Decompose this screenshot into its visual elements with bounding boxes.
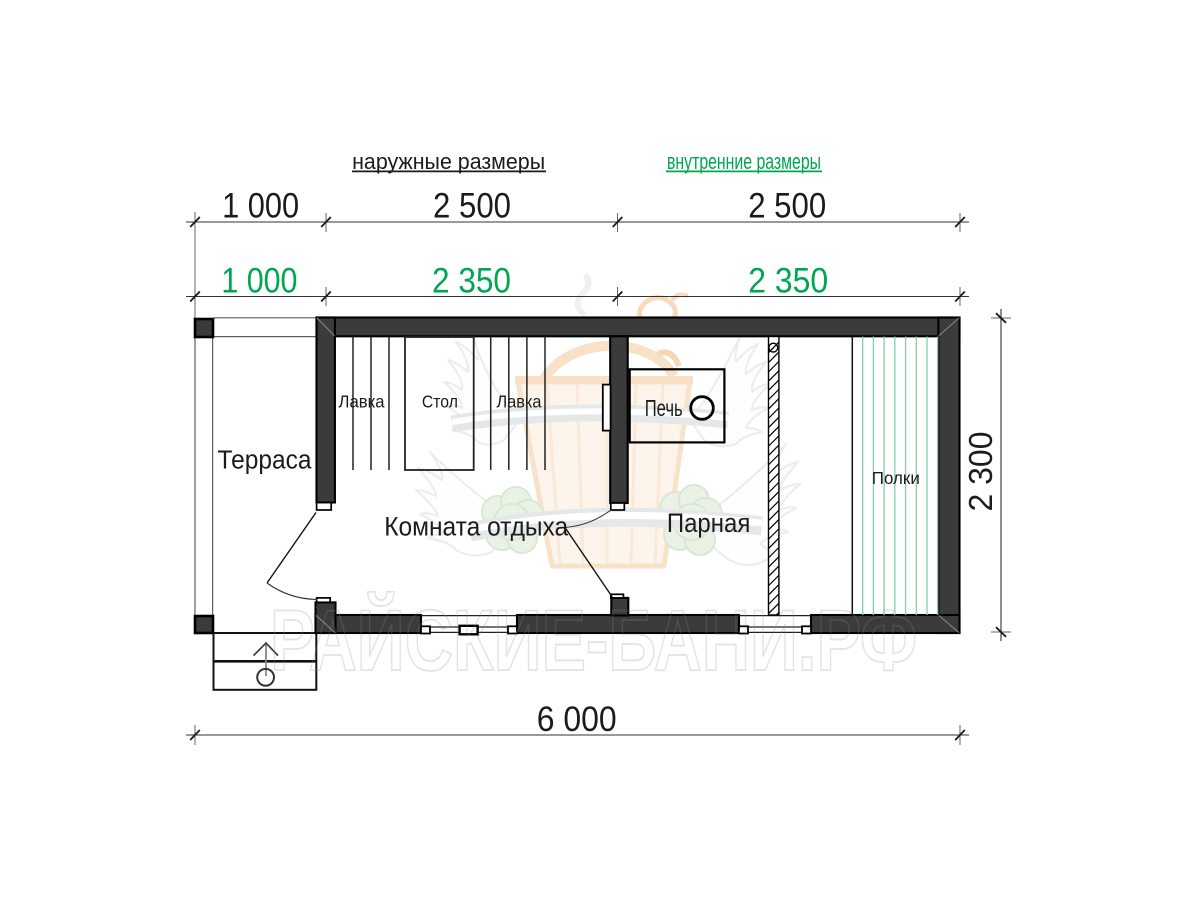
svg-text:2 300: 2 300	[962, 432, 999, 512]
svg-text:2 500: 2 500	[748, 187, 826, 226]
svg-text:6 000: 6 000	[537, 700, 617, 739]
svg-text:Парная: Парная	[667, 508, 751, 538]
svg-text:2 500: 2 500	[433, 187, 511, 226]
svg-text:1 000: 1 000	[222, 187, 299, 226]
svg-text:1 000: 1 000	[221, 262, 297, 301]
svg-text:2 350: 2 350	[432, 262, 511, 301]
svg-text:Полки: Полки	[872, 468, 920, 488]
svg-text:Комната отдыха: Комната отдыха	[384, 512, 568, 542]
svg-text:Стол: Стол	[422, 391, 458, 411]
svg-text:наружные размеры: наружные размеры	[352, 149, 545, 174]
svg-text:РАЙСКИЕ-БАНИ.РФ: РАЙСКИЕ-БАНИ.РФ	[270, 592, 917, 689]
svg-text:2 350: 2 350	[748, 262, 828, 301]
svg-text:внутренние размеры: внутренние размеры	[667, 149, 821, 174]
svg-text:Лавка: Лавка	[497, 391, 542, 411]
svg-text:Лавка: Лавка	[339, 391, 385, 411]
svg-text:Терраса: Терраса	[218, 447, 313, 475]
svg-text:Печь: Печь	[645, 395, 683, 421]
